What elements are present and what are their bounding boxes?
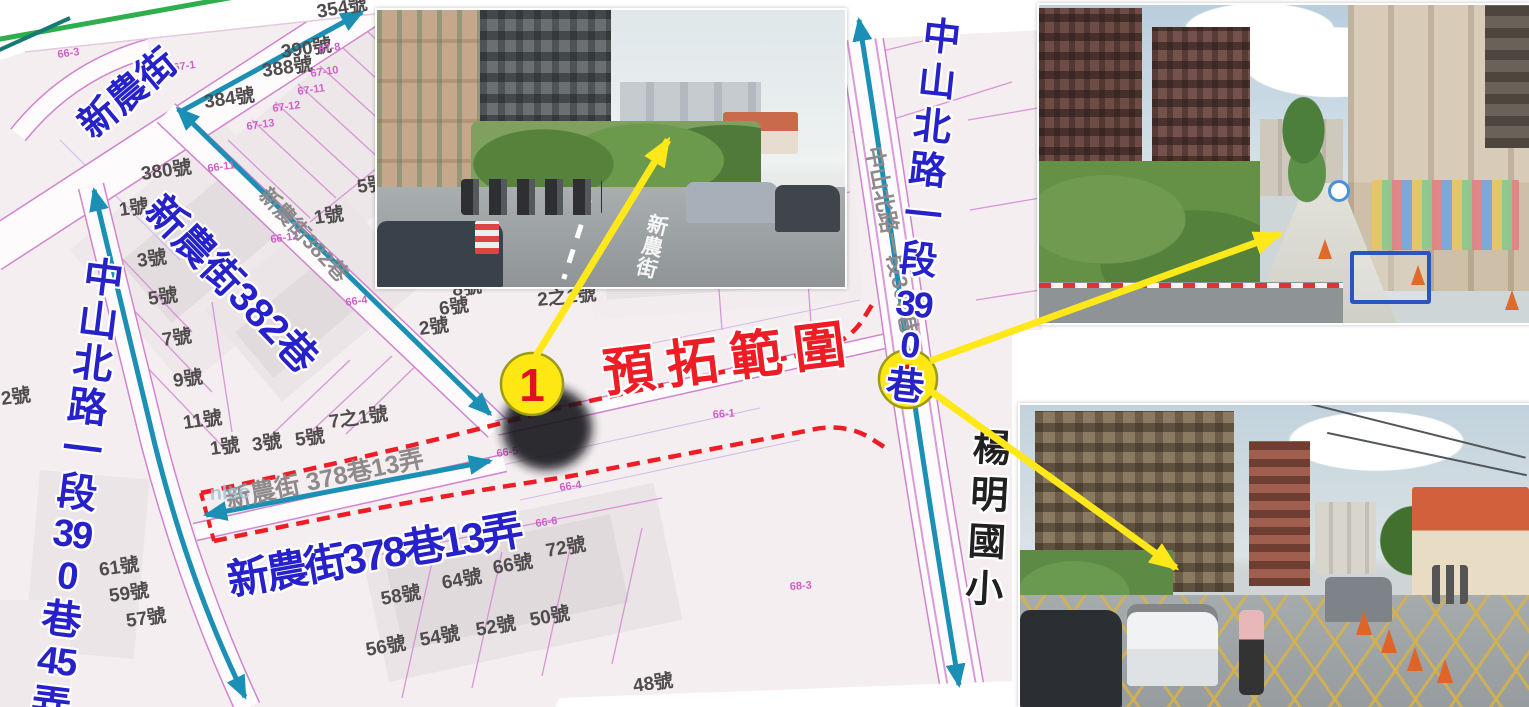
house-num: 7號 xyxy=(161,325,193,351)
parcel-code: 66-1 xyxy=(712,407,735,421)
label-right-road-number: 390 xyxy=(884,281,938,368)
red-tower xyxy=(1249,441,1310,586)
traffic-cone xyxy=(1411,265,1425,285)
house-num: 1號 xyxy=(313,203,345,229)
parked-scooters xyxy=(461,179,601,215)
white-suv xyxy=(1127,604,1219,686)
traffic-cone xyxy=(1318,239,1332,259)
streetview-pin xyxy=(1328,180,1350,202)
traffic-cone xyxy=(1356,611,1372,635)
label-right-road-lane: 巷 xyxy=(880,363,930,411)
balconies xyxy=(1485,5,1529,148)
pedestrians xyxy=(1432,565,1468,604)
red-white-curb xyxy=(1039,283,1343,288)
traffic-cone xyxy=(1437,659,1453,683)
parked-car xyxy=(686,182,780,224)
house-num: 1號 xyxy=(209,434,241,460)
label-left-road-alley-number: 45 xyxy=(30,639,83,686)
house-num: 9號 xyxy=(172,366,204,392)
house-num: 2號 xyxy=(0,384,32,410)
traffic-cone xyxy=(1407,647,1423,671)
streetview-photo-2 xyxy=(1037,3,1529,325)
label-left-road-number: 390 xyxy=(40,512,98,601)
utility-wire xyxy=(1327,432,1527,476)
parcel-code: 68-3 xyxy=(789,579,812,593)
traffic-cone xyxy=(1505,290,1519,310)
traffic-cone xyxy=(1381,629,1397,653)
label-left-road-lane: 巷 xyxy=(35,595,88,645)
watermark: nlsc xyxy=(209,481,250,505)
parked-car xyxy=(775,185,841,232)
slide-canvas: 354號390號388號384號380號1號3號5號7號9號11號1號3號5號1… xyxy=(0,0,1529,707)
marker-1-number: 1 xyxy=(519,359,545,411)
marker-1: 1 xyxy=(501,353,563,415)
tree xyxy=(1269,94,1338,215)
striped-barrier xyxy=(475,221,498,254)
storefront xyxy=(1372,180,1519,250)
house-num: 3號 xyxy=(251,430,283,456)
mid-buildings xyxy=(1315,502,1376,574)
house-num: 5號 xyxy=(147,284,179,310)
streetview-photo-3 xyxy=(1018,403,1529,707)
house-num: 5號 xyxy=(294,425,326,451)
scooter-rider xyxy=(1239,610,1264,695)
black-suv xyxy=(1020,610,1122,707)
streetview-photo-1: 新農街 xyxy=(375,8,847,289)
red-roof-school-building xyxy=(1412,487,1529,602)
